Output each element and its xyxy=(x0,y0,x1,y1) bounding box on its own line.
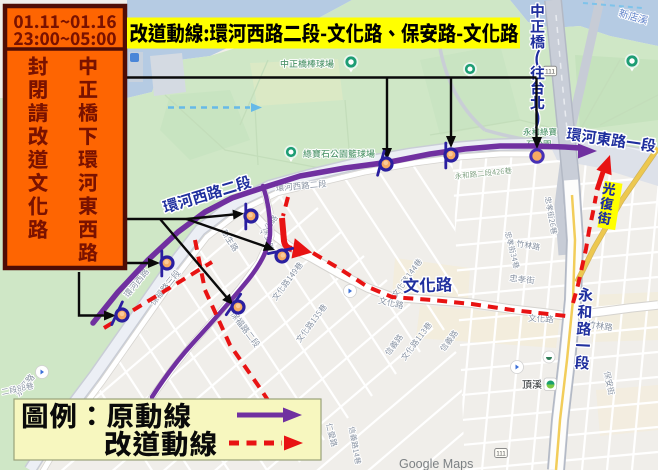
svg-text:111: 111 xyxy=(496,451,506,458)
svg-text:Google Maps: Google Maps xyxy=(399,457,473,470)
svg-text:111: 111 xyxy=(545,69,555,76)
